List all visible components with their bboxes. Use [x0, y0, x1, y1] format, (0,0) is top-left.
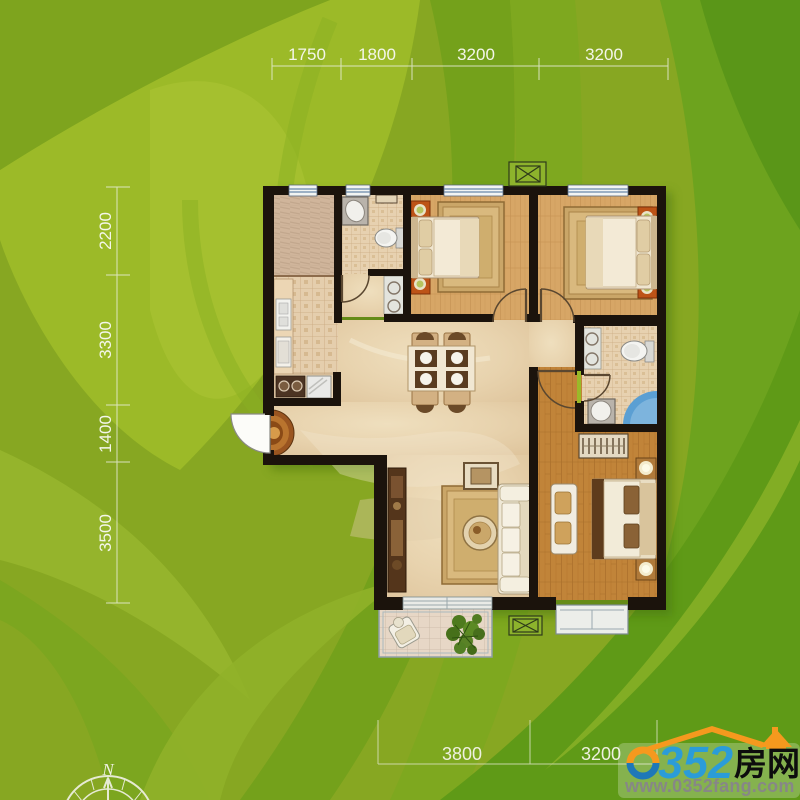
svg-text:3200: 3200 — [581, 744, 621, 764]
svg-text:1800: 1800 — [358, 45, 396, 64]
svg-text:www.0352fang.com: www.0352fang.com — [624, 776, 795, 796]
svg-text:3800: 3800 — [442, 744, 482, 764]
svg-text:3200: 3200 — [585, 45, 623, 64]
svg-text:3300: 3300 — [96, 321, 115, 359]
svg-text:N: N — [101, 760, 115, 779]
svg-text:2200: 2200 — [96, 212, 115, 250]
svg-text:3200: 3200 — [457, 45, 495, 64]
svg-text:3500: 3500 — [96, 514, 115, 552]
svg-text:1400: 1400 — [96, 415, 115, 453]
svg-text:1750: 1750 — [288, 45, 326, 64]
